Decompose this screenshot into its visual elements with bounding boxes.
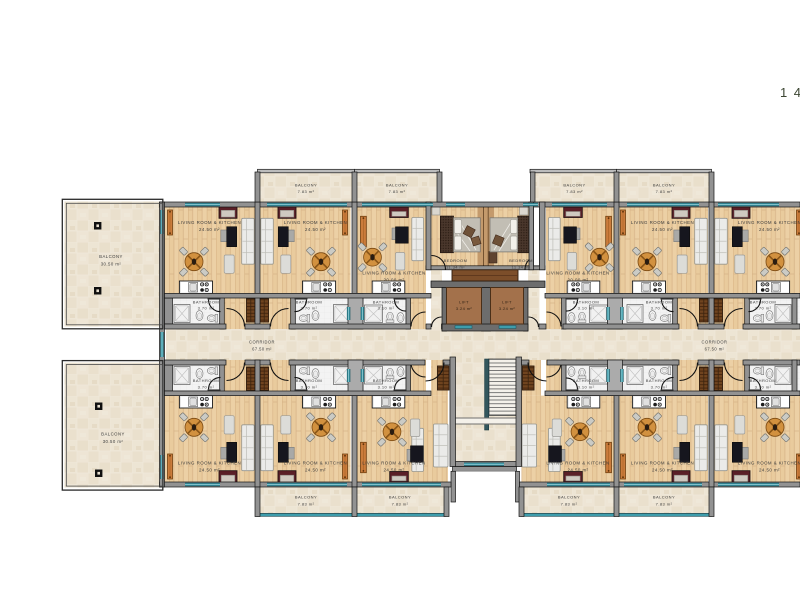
svg-text:BEDROOM: BEDROOM — [509, 258, 533, 263]
svg-text:LIVING ROOM & KITCHEN: LIVING ROOM & KITCHEN — [362, 271, 425, 276]
svg-text:3.10 m²: 3.10 m² — [578, 305, 595, 310]
svg-text:BALCONY: BALCONY — [653, 183, 675, 188]
svg-text:BATHROOM: BATHROOM — [296, 378, 322, 383]
svg-text:11.34 m²: 11.34 m² — [511, 265, 530, 270]
svg-text:24.50 m²: 24.50 m² — [384, 468, 405, 473]
svg-text:CORRIDOR: CORRIDOR — [702, 340, 728, 345]
svg-text:BATHROOM: BATHROOM — [193, 299, 219, 304]
svg-text:3.24 m²: 3.24 m² — [456, 306, 473, 311]
svg-text:LIFT: LIFT — [502, 300, 512, 305]
svg-text:30.50 m²: 30.50 m² — [103, 439, 124, 444]
svg-text:7.83 m²: 7.83 m² — [298, 189, 315, 194]
svg-text:67.50 m²: 67.50 m² — [705, 347, 725, 352]
svg-text:24.50 m²: 24.50 m² — [568, 468, 589, 473]
svg-text:3.70 m²: 3.70 m² — [301, 305, 318, 310]
svg-text:LIVING ROOM & KITCHEN: LIVING ROOM & KITCHEN — [178, 220, 241, 225]
svg-text:3.24 m²: 3.24 m² — [499, 306, 516, 311]
svg-text:24.50 m²: 24.50 m² — [305, 227, 326, 232]
svg-text:BATHROOM: BATHROOM — [750, 378, 776, 383]
svg-text:3.70 m²: 3.70 m² — [301, 385, 318, 390]
svg-text:LIVING ROOM & KITCHEN: LIVING ROOM & KITCHEN — [284, 220, 347, 225]
svg-text:BALCONY: BALCONY — [558, 495, 580, 500]
svg-text:BALCONY: BALCONY — [101, 432, 125, 437]
svg-text:14: 14 — [780, 85, 800, 100]
svg-text:3.10 m²: 3.10 m² — [378, 385, 395, 390]
svg-text:3.70 m²: 3.70 m² — [755, 305, 772, 310]
svg-text:24.50 m²: 24.50 m² — [759, 468, 780, 473]
svg-text:BALCONY: BALCONY — [295, 495, 317, 500]
svg-text:LIVING ROOM & KITCHEN: LIVING ROOM & KITCHEN — [738, 220, 800, 225]
svg-text:7.83 m²: 7.83 m² — [392, 502, 409, 507]
svg-text:BATHROOM: BATHROOM — [373, 299, 399, 304]
svg-text:LIVING ROOM & KITCHEN: LIVING ROOM & KITCHEN — [738, 461, 800, 466]
svg-text:24.50 m²: 24.50 m² — [759, 227, 780, 232]
svg-text:7.83 m²: 7.83 m² — [298, 502, 315, 507]
svg-text:BALCONY: BALCONY — [99, 254, 123, 259]
svg-text:BATHROOM: BATHROOM — [296, 299, 322, 304]
svg-text:20.00 m²: 20.00 m² — [384, 278, 405, 283]
svg-text:LIVING ROOM & KITCHEN: LIVING ROOM & KITCHEN — [546, 271, 609, 276]
svg-text:3.70 m²: 3.70 m² — [755, 385, 772, 390]
svg-text:LIVING ROOM & KITCHEN: LIVING ROOM & KITCHEN — [631, 220, 694, 225]
svg-text:BALCONY: BALCONY — [653, 495, 675, 500]
svg-text:30.50 m²: 30.50 m² — [101, 262, 122, 267]
svg-text:LIVING ROOM & KITCHEN: LIVING ROOM & KITCHEN — [546, 461, 609, 466]
svg-text:BATHROOM: BATHROOM — [373, 378, 399, 383]
svg-text:67.50 m²: 67.50 m² — [252, 347, 272, 352]
svg-text:24.50 m²: 24.50 m² — [652, 468, 673, 473]
svg-text:3.70 m²: 3.70 m² — [651, 385, 668, 390]
svg-text:BALCONY: BALCONY — [389, 495, 411, 500]
svg-text:7.83 m²: 7.83 m² — [566, 189, 583, 194]
svg-text:BALCONY: BALCONY — [386, 183, 408, 188]
svg-text:BATHROOM: BATHROOM — [573, 299, 599, 304]
svg-text:3.10 m²: 3.10 m² — [378, 305, 395, 310]
svg-text:7.83 m²: 7.83 m² — [561, 502, 578, 507]
svg-text:24.50 m²: 24.50 m² — [199, 468, 220, 473]
svg-text:BATHROOM: BATHROOM — [750, 299, 776, 304]
svg-text:BALCONY: BALCONY — [563, 183, 585, 188]
svg-text:LIVING ROOM & KITCHEN: LIVING ROOM & KITCHEN — [362, 461, 425, 466]
svg-text:3.10 m²: 3.10 m² — [578, 385, 595, 390]
svg-text:LIVING ROOM & KITCHEN: LIVING ROOM & KITCHEN — [631, 461, 694, 466]
svg-text:BATHROOM: BATHROOM — [193, 378, 219, 383]
svg-text:CORRIDOR: CORRIDOR — [249, 340, 275, 345]
svg-text:BATHROOM: BATHROOM — [646, 299, 672, 304]
svg-text:BATHROOM: BATHROOM — [646, 378, 672, 383]
svg-text:24.50 m²: 24.50 m² — [199, 227, 220, 232]
svg-text:24.50 m²: 24.50 m² — [652, 227, 673, 232]
svg-text:LIVING ROOM & KITCHEN: LIVING ROOM & KITCHEN — [178, 461, 241, 466]
svg-text:3.70 m²: 3.70 m² — [651, 305, 668, 310]
svg-text:BALCONY: BALCONY — [295, 183, 317, 188]
svg-text:3.70 m²: 3.70 m² — [198, 385, 215, 390]
svg-text:BATHROOM: BATHROOM — [573, 378, 599, 383]
svg-text:7.83 m²: 7.83 m² — [656, 502, 673, 507]
svg-text:BEDROOM: BEDROOM — [444, 258, 468, 263]
svg-text:LIFT: LIFT — [459, 300, 469, 305]
svg-text:7.83 m²: 7.83 m² — [656, 189, 673, 194]
svg-text:LIVING ROOM & KITCHEN: LIVING ROOM & KITCHEN — [284, 461, 347, 466]
svg-text:7.83 m²: 7.83 m² — [389, 189, 406, 194]
svg-text:24.50 m²: 24.50 m² — [305, 468, 326, 473]
svg-text:20.00 m²: 20.00 m² — [568, 278, 589, 283]
svg-text:11.34 m²: 11.34 m² — [446, 265, 465, 270]
svg-text:3.70 m²: 3.70 m² — [198, 305, 215, 310]
